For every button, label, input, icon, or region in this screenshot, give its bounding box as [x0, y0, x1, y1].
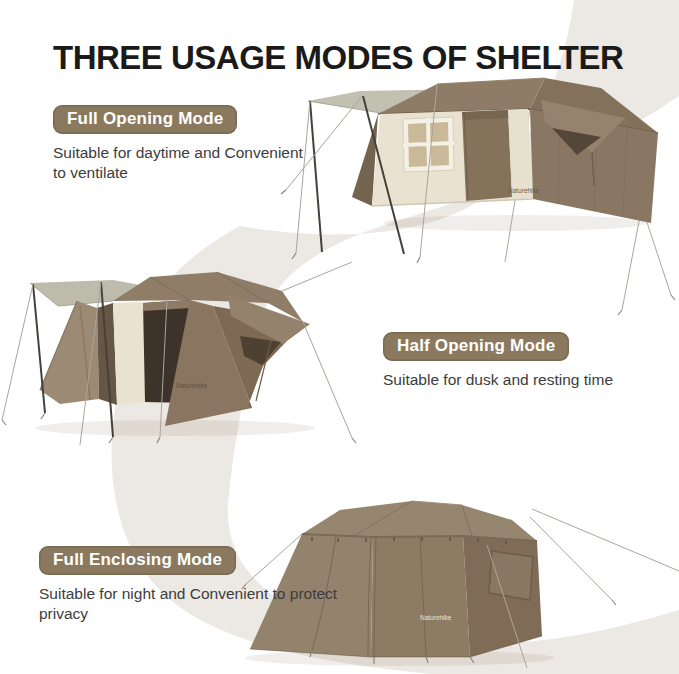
- page-title: THREE USAGE MODES OF SHELTER: [53, 41, 623, 74]
- mode-description-full-opening: Suitable for daytime and Convenient to v…: [53, 143, 308, 184]
- mode-section-half-opening: Half Opening Mode Suitable for dusk and …: [383, 332, 613, 390]
- tent-full-opening-illustration: Naturehike: [281, 78, 675, 315]
- mode-badge-full-enclosing: Full Enclosing Mode: [39, 546, 236, 575]
- tent-half-opening-illustration: Naturehike: [2, 262, 356, 445]
- tent2-front-wall: [113, 302, 145, 405]
- mode-section-full-opening: Full Opening Mode Suitable for daytime a…: [53, 105, 308, 183]
- mode-badge-full-opening: Full Opening Mode: [53, 105, 237, 134]
- tent3-window-flap: [489, 551, 533, 600]
- mode-section-full-enclosing: Full Enclosing Mode Suitable for night a…: [39, 546, 339, 624]
- naturehike-logo-text: Naturehike: [508, 187, 540, 194]
- mode-badge-half-opening: Half Opening Mode: [383, 332, 569, 361]
- mode-description-full-enclosing: Suitable for night and Convenient to pro…: [39, 584, 339, 625]
- tent2-left-wing-panel: [40, 301, 99, 404]
- mode-description-half-opening: Suitable for dusk and resting time: [383, 370, 613, 390]
- product-infographic: { "header": { "title": "THREE USAGE MODE…: [0, 0, 679, 674]
- tent1-door-panel: [462, 110, 512, 201]
- tent1-corner-strip: [508, 109, 533, 199]
- naturehike-logo-text: Naturehike: [176, 382, 208, 389]
- naturehike-logo-text: Naturehike: [420, 614, 452, 621]
